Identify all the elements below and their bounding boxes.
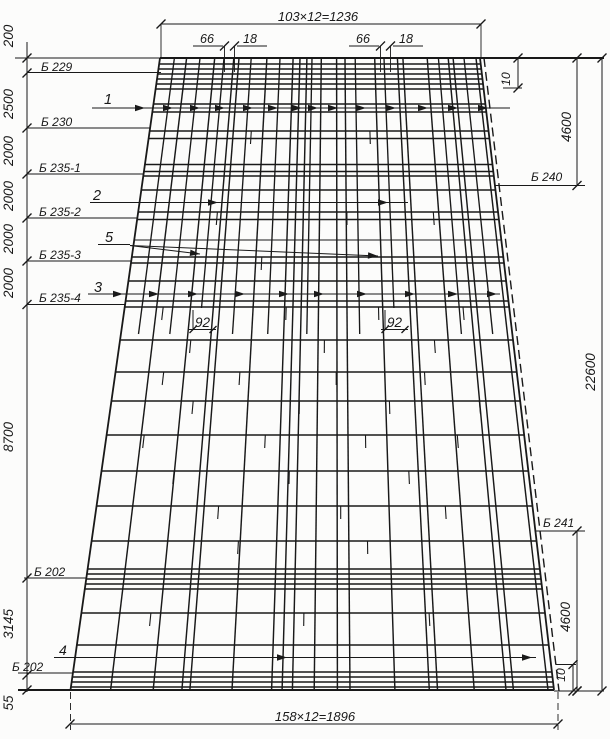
svg-text:2000: 2000 xyxy=(1,223,16,255)
svg-text:3: 3 xyxy=(94,280,102,296)
svg-text:Б 235-3: Б 235-3 xyxy=(39,248,81,262)
svg-text:4600: 4600 xyxy=(559,111,574,142)
svg-text:10: 10 xyxy=(499,72,513,86)
svg-text:18: 18 xyxy=(243,32,257,46)
svg-text:22600: 22600 xyxy=(583,353,598,392)
svg-text:55: 55 xyxy=(1,695,16,711)
svg-text:10: 10 xyxy=(554,668,568,682)
svg-text:2000: 2000 xyxy=(1,267,16,299)
svg-text:Б 202: Б 202 xyxy=(12,660,43,674)
svg-text:Б 230: Б 230 xyxy=(41,115,72,129)
svg-text:158×12=1896: 158×12=1896 xyxy=(275,709,356,724)
svg-text:66: 66 xyxy=(356,32,370,46)
svg-text:2: 2 xyxy=(92,188,101,204)
svg-text:4: 4 xyxy=(59,642,67,658)
svg-text:1: 1 xyxy=(104,92,112,108)
svg-text:92: 92 xyxy=(387,315,403,330)
svg-text:2500: 2500 xyxy=(1,88,16,120)
svg-text:Б 235-4: Б 235-4 xyxy=(39,291,81,305)
svg-text:Б 229: Б 229 xyxy=(41,60,72,74)
svg-text:200: 200 xyxy=(1,24,16,48)
svg-text:Б 235-1: Б 235-1 xyxy=(39,161,81,175)
svg-text:Б 241: Б 241 xyxy=(543,516,574,530)
svg-text:4600: 4600 xyxy=(558,601,573,632)
svg-text:66: 66 xyxy=(200,32,214,46)
svg-text:Б 202: Б 202 xyxy=(34,565,65,579)
svg-text:2000: 2000 xyxy=(1,135,16,167)
svg-text:2000: 2000 xyxy=(1,180,16,212)
svg-text:3145: 3145 xyxy=(1,608,16,639)
svg-text:Б 235-2: Б 235-2 xyxy=(39,205,81,219)
svg-text:92: 92 xyxy=(195,315,211,330)
svg-text:Б 240: Б 240 xyxy=(531,170,562,184)
svg-text:103×12=1236: 103×12=1236 xyxy=(278,9,359,24)
svg-text:5: 5 xyxy=(105,230,114,246)
svg-text:8700: 8700 xyxy=(1,421,16,452)
svg-text:18: 18 xyxy=(399,32,413,46)
